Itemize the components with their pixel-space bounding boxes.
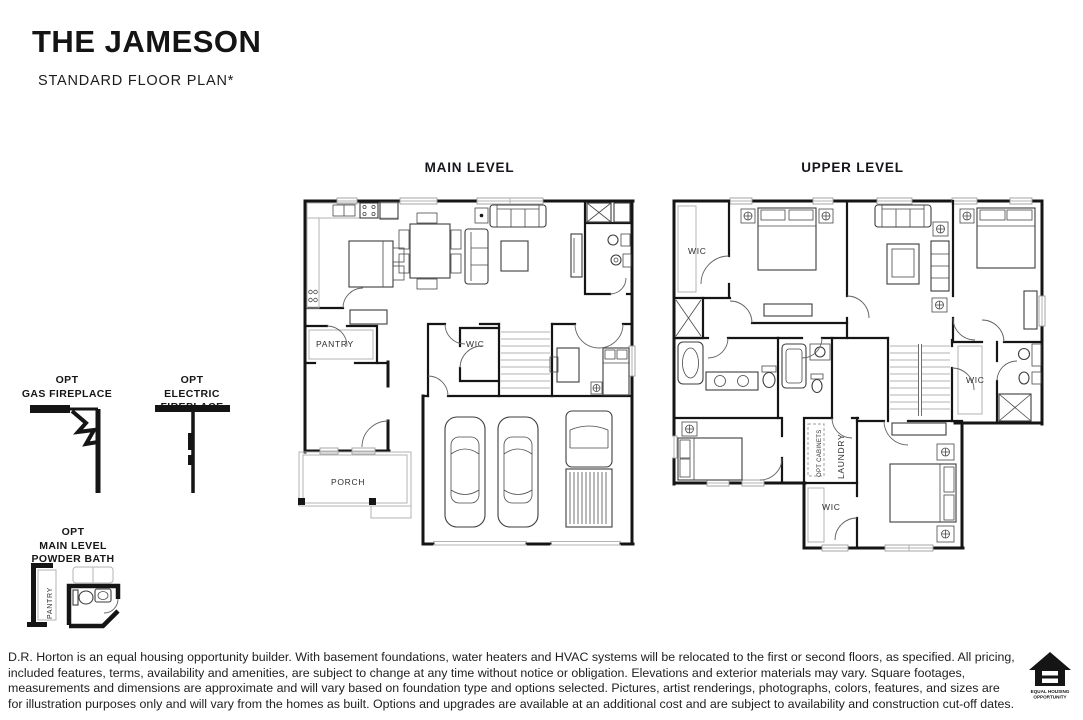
page-title: THE JAMESON xyxy=(32,24,261,60)
opt-gas-fireplace-diagram xyxy=(28,399,113,501)
nightstand-lamp-icon xyxy=(960,209,974,223)
bed-icon xyxy=(678,438,742,480)
powder-bath-fixtures-icon xyxy=(608,234,631,267)
mud-bench-icon xyxy=(350,310,387,324)
toilet-icon xyxy=(811,374,823,393)
coffee-table-icon xyxy=(501,241,528,271)
dresser-icon xyxy=(764,304,812,316)
toilet-icon xyxy=(73,590,93,605)
bathtub-icon xyxy=(678,342,703,384)
desk-icon xyxy=(550,348,579,382)
opt-cabinets-label: OPT CABINETS xyxy=(817,430,823,478)
stairs-icon xyxy=(501,332,550,388)
opt-powder-bath-diagram: PANTRY xyxy=(25,559,130,637)
opt-gas-fireplace-label: OPT GAS FIREPLACE xyxy=(17,374,117,401)
bed-icon xyxy=(890,464,956,522)
counter-icon xyxy=(73,567,113,583)
kitchen-counter-icon xyxy=(307,202,398,308)
car-icon xyxy=(498,417,538,527)
bed-icon xyxy=(603,348,629,395)
wall-art-icon xyxy=(475,208,488,223)
bed-icon xyxy=(977,208,1035,268)
car-icon xyxy=(445,417,485,527)
stairs-icon xyxy=(890,344,950,416)
sofa-icon xyxy=(490,205,546,227)
equal-housing-house-icon xyxy=(1029,652,1071,686)
upper-level-heading: UPPER LEVEL xyxy=(660,160,1045,175)
upper-wic-bottom-label: WIC xyxy=(822,502,841,512)
toilet-icon xyxy=(762,366,776,388)
main-level-floor-plan: PANTRY WIC PORCH xyxy=(297,196,642,556)
nightstand-lamp-icon xyxy=(682,422,697,436)
sofa-icon xyxy=(875,205,931,227)
main-outer-walls xyxy=(305,201,633,544)
closet-shelves-icon xyxy=(808,488,824,542)
tv-console-icon xyxy=(571,234,582,277)
main-pantry-label: PANTRY xyxy=(316,339,354,349)
equal-housing-opportunity-logo: EQUAL HOUSING OPPORTUNITY xyxy=(1027,650,1073,700)
shower-icon xyxy=(999,394,1031,421)
toilet-icon xyxy=(1019,372,1041,384)
upper-level-floor-plan: WIC xyxy=(672,196,1048,556)
sink-icon xyxy=(95,589,111,602)
bed-icon xyxy=(758,208,816,270)
opt-powder-bath-pantry-label: PANTRY xyxy=(47,587,54,619)
armchair-icon xyxy=(887,244,919,284)
eho-text-line2: OPPORTUNITY xyxy=(1033,695,1066,700)
double-vanity-icon xyxy=(706,372,758,390)
eho-text-line1: EQUAL HOUSING xyxy=(1031,689,1070,694)
linen-closet-icon xyxy=(676,300,701,336)
nightstand-lamp-icon xyxy=(591,382,602,394)
upper-wic-top-label: WIC xyxy=(688,246,707,256)
bookshelf-icon xyxy=(931,241,949,291)
bathtub-icon xyxy=(782,344,806,388)
kitchen-island-icon xyxy=(349,241,404,287)
dresser-icon xyxy=(892,423,946,435)
sink-icon xyxy=(1019,344,1042,366)
nightstand-lamp-icon xyxy=(937,444,954,542)
main-wic-label: WIC xyxy=(466,339,485,349)
coat-closet-icon xyxy=(587,203,630,222)
door-arc-icon xyxy=(701,256,1017,540)
loveseat-icon xyxy=(465,229,488,284)
upper-wic-right-label: WIC xyxy=(966,375,985,385)
opt-electric-fireplace-diagram xyxy=(150,399,235,501)
laundry-label: LAUNDRY xyxy=(836,434,846,479)
disclaimer-text: D.R. Horton is an equal housing opportun… xyxy=(8,650,1016,713)
dresser-icon xyxy=(1024,291,1037,329)
main-level-heading: MAIN LEVEL xyxy=(297,160,642,175)
truck-icon xyxy=(566,411,612,527)
page: { "header": { "title": "THE JAMESON", "s… xyxy=(0,0,1083,720)
side-table-lamp-icon xyxy=(932,222,948,312)
dining-table-icon xyxy=(399,213,461,289)
page-subtitle: STANDARD FLOOR PLAN* xyxy=(38,73,234,89)
upper-interior-walls xyxy=(674,201,1042,548)
main-porch-label: PORCH xyxy=(331,477,365,487)
main-interior-walls xyxy=(305,201,632,396)
nightstand-lamp-icon xyxy=(741,209,833,223)
